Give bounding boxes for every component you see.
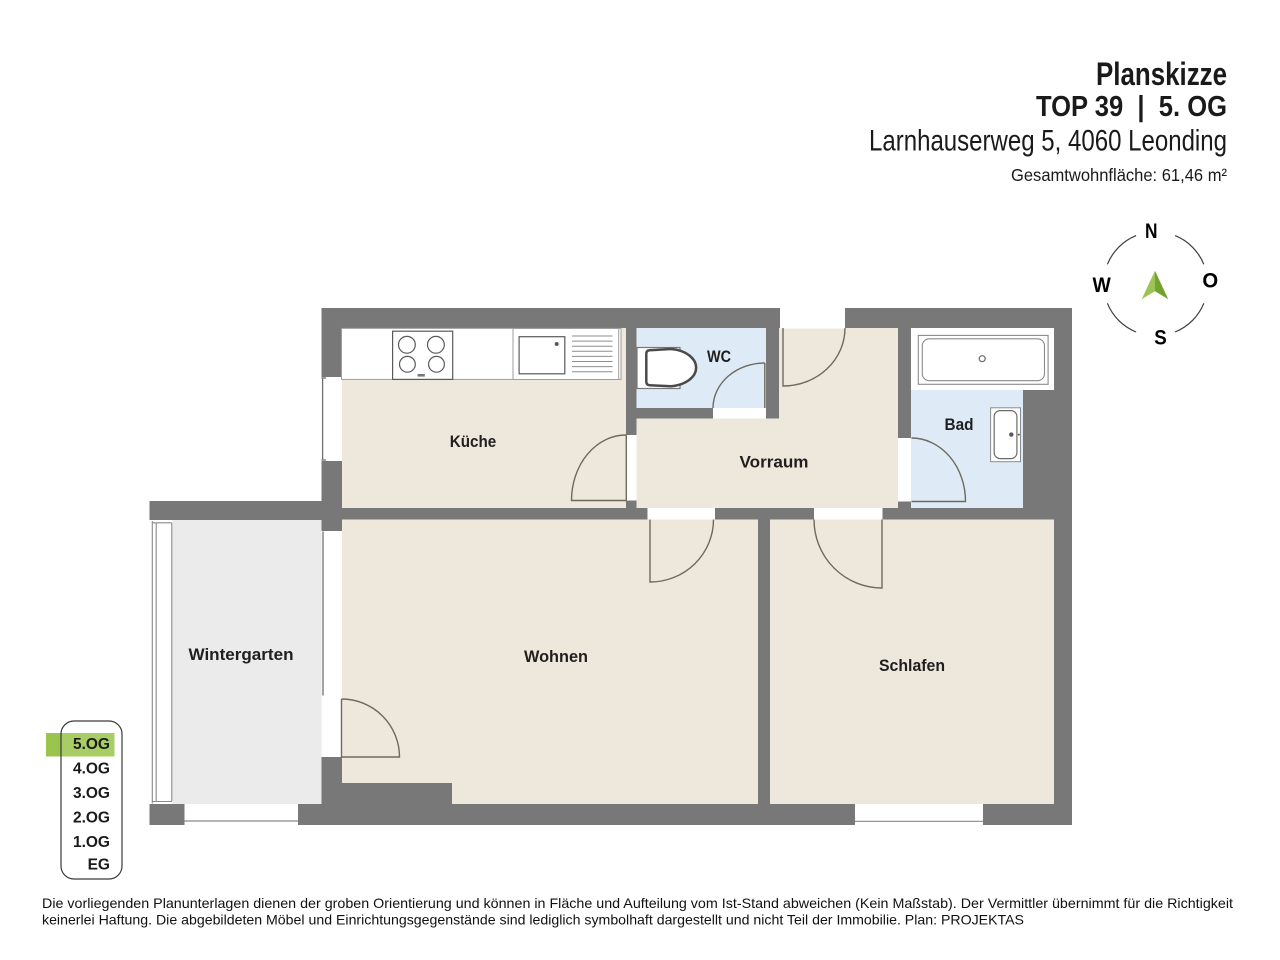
svg-text:Küche: Küche xyxy=(450,432,497,451)
svg-text:TOP 39 | 5. OG: TOP 39 | 5. OG xyxy=(1036,91,1227,123)
svg-text:WC: WC xyxy=(707,347,731,366)
svg-text:Planskizze: Planskizze xyxy=(1096,56,1227,92)
svg-text:Gesamtwohnfläche: 61,46 m²: Gesamtwohnfläche: 61,46 m² xyxy=(1011,165,1227,185)
svg-text:Die vorliegenden Planunterlage: Die vorliegenden Planunterlagen dienen d… xyxy=(42,895,1233,911)
svg-text:1.OG: 1.OG xyxy=(73,834,110,851)
svg-text:Larnhauserweg 5, 4060 Leonding: Larnhauserweg 5, 4060 Leonding xyxy=(869,125,1227,158)
svg-text:2.OG: 2.OG xyxy=(73,810,110,827)
svg-text:N: N xyxy=(1145,220,1158,243)
svg-text:4.OG: 4.OG xyxy=(73,761,110,778)
svg-text:S: S xyxy=(1154,327,1167,350)
svg-text:3.OG: 3.OG xyxy=(73,785,110,802)
svg-text:Wohnen: Wohnen xyxy=(524,647,588,666)
svg-text:keinerlei Haftung. Die abgebil: keinerlei Haftung. Die abgebildeten Möbe… xyxy=(42,912,1024,928)
svg-text:5.OG: 5.OG xyxy=(73,736,110,753)
svg-text:W: W xyxy=(1093,274,1111,297)
svg-text:EG: EG xyxy=(88,857,110,874)
svg-text:Vorraum: Vorraum xyxy=(740,453,809,472)
svg-text:Wintergarten: Wintergarten xyxy=(189,645,294,664)
svg-text:O: O xyxy=(1202,270,1218,293)
svg-text:Bad: Bad xyxy=(945,415,974,434)
svg-text:Schlafen: Schlafen xyxy=(879,656,945,675)
